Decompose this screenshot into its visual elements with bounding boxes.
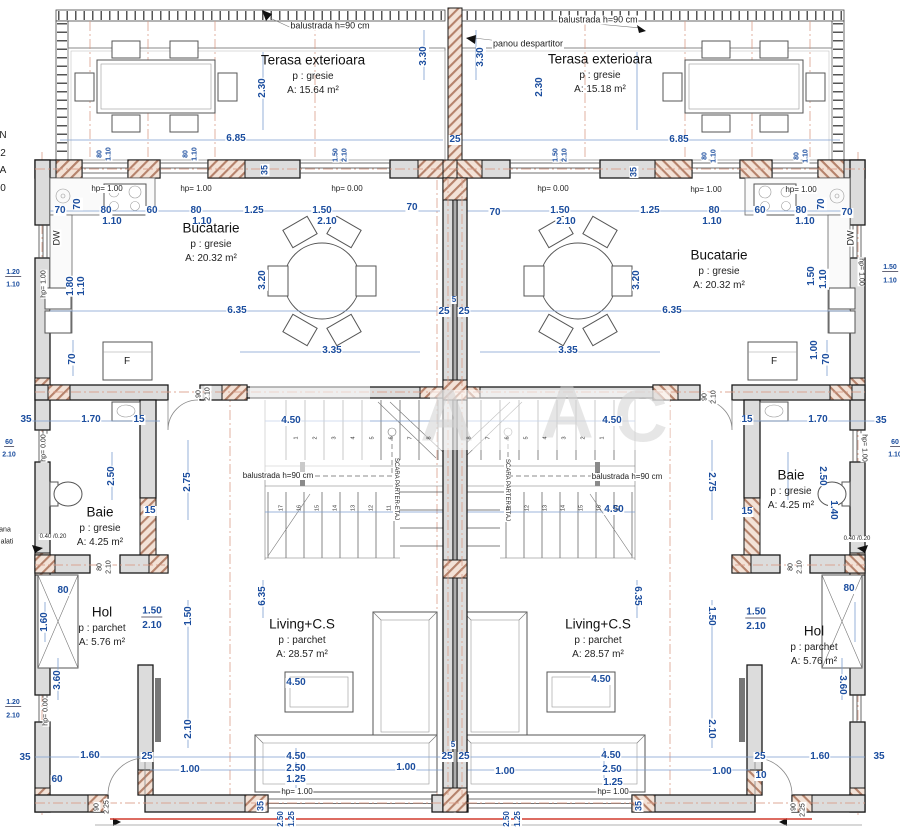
floor-plan-page: AAC 2.303.303.302.306.85256.85801.10801.… [0,0,900,828]
center-dividing-wall [443,8,467,812]
floor-plan-svg [0,0,900,828]
